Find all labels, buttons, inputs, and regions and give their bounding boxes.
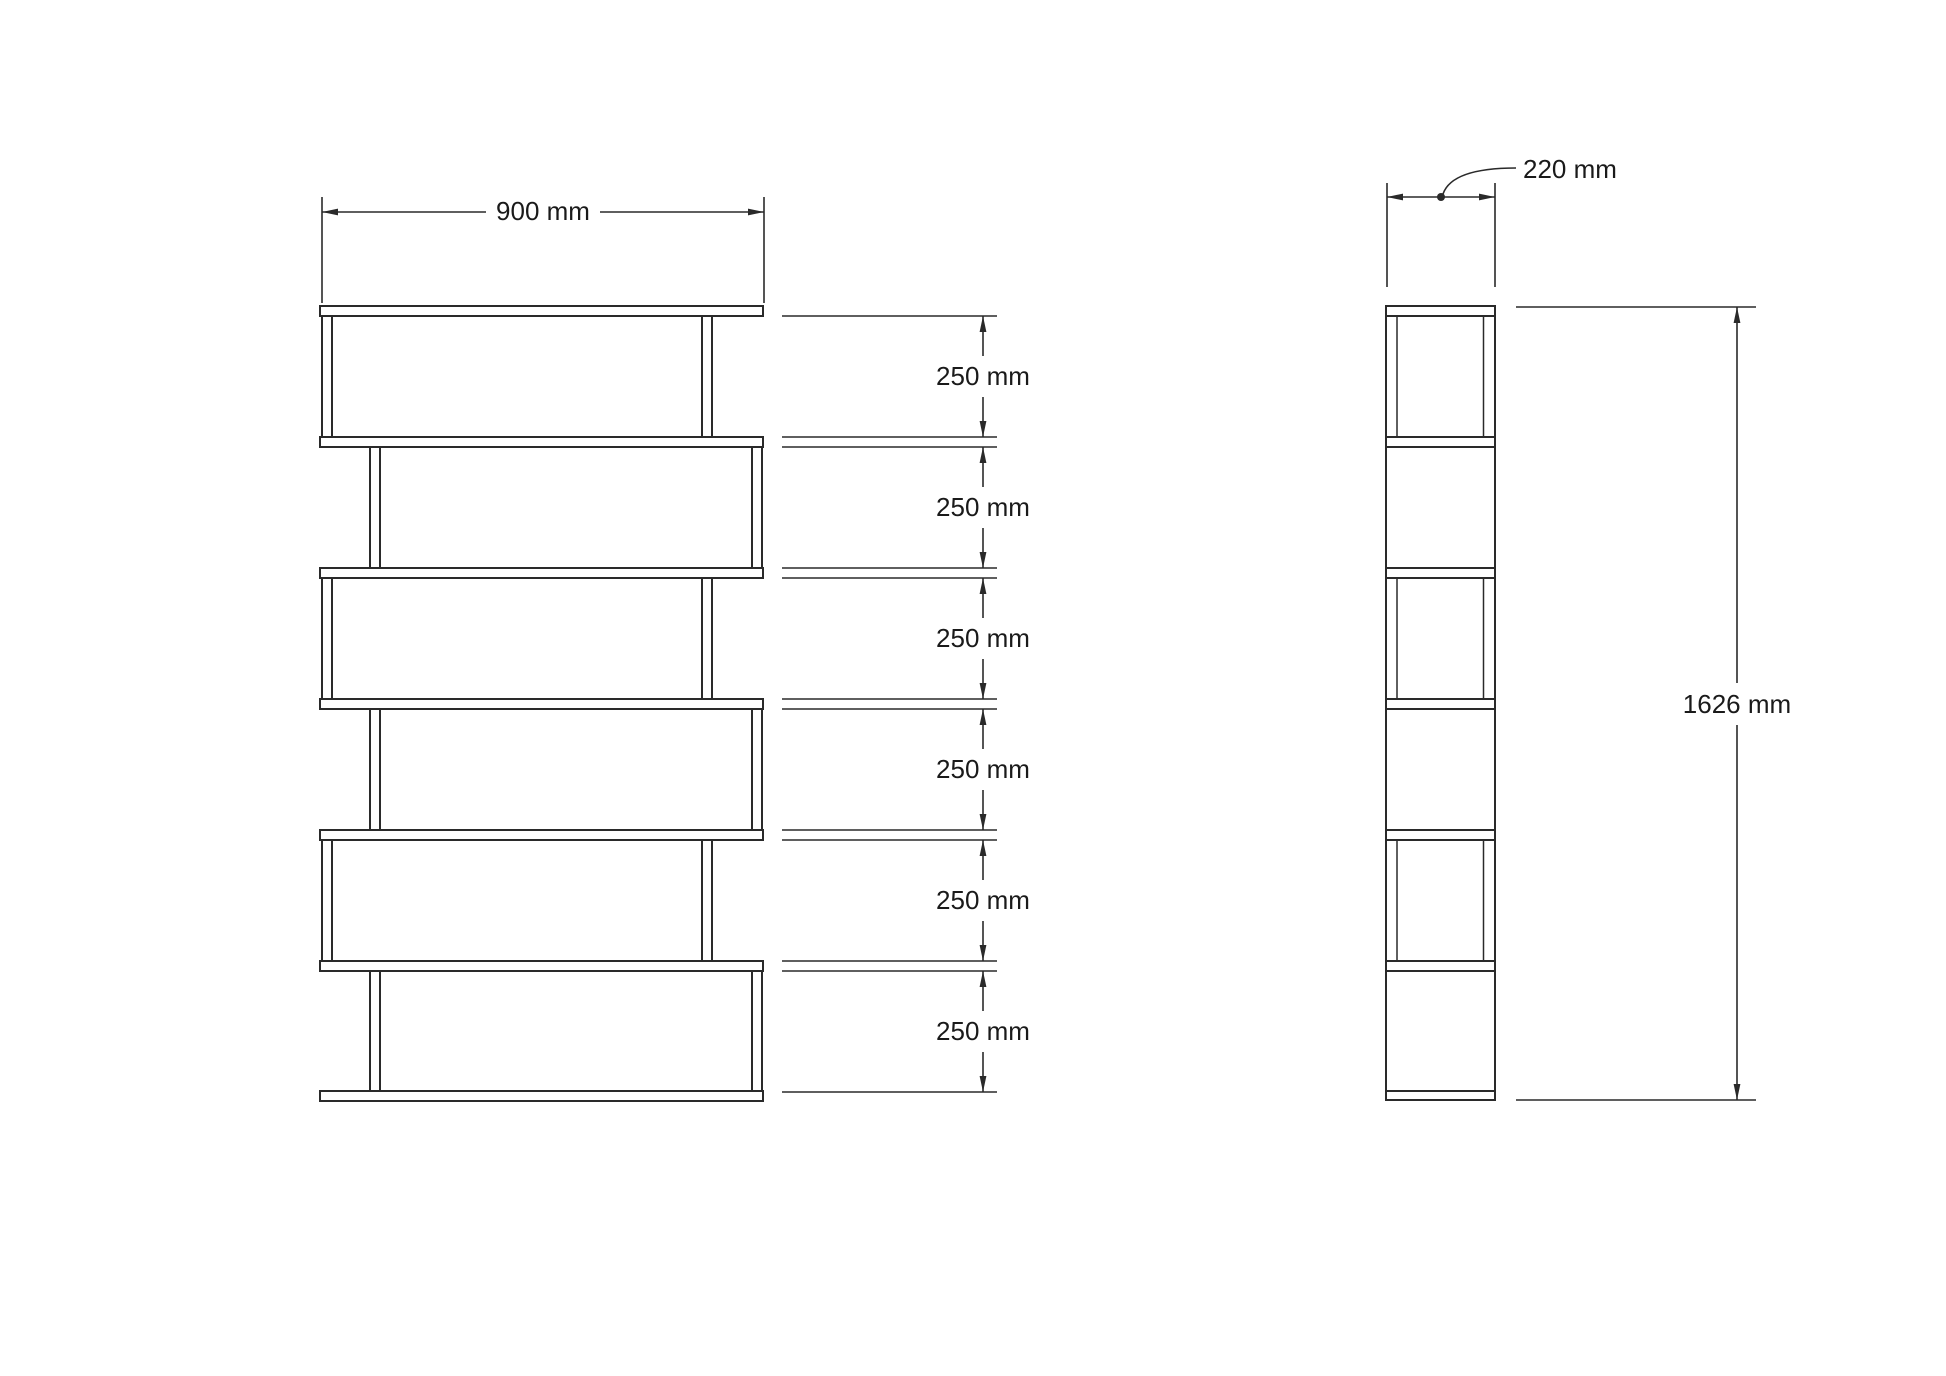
arrowhead-down — [980, 945, 987, 961]
arrowhead-up — [980, 447, 987, 463]
shelf-board — [320, 437, 763, 447]
vertical-panel — [370, 709, 380, 830]
shelf-board — [320, 830, 763, 840]
dimension-label-250mm: 250 mm — [936, 754, 1030, 784]
arrowhead-down — [980, 552, 987, 568]
vertical-panel — [752, 709, 762, 830]
arrowhead-up — [980, 578, 987, 594]
dimension-label-250mm: 250 mm — [936, 1016, 1030, 1046]
dimension-250mm-stack: 250 mm 250 mm 250 mm 250 mm — [782, 316, 1030, 1092]
dimension-250mm-5: 250 mm — [936, 840, 1030, 961]
arrowhead-left — [1387, 194, 1403, 201]
arrowhead-up — [980, 840, 987, 856]
dimension-250mm-2: 250 mm — [936, 447, 1030, 568]
dimension-1626mm: 1626 mm — [1516, 307, 1791, 1100]
shelf-board — [320, 1091, 763, 1101]
arrowhead-left — [322, 209, 338, 216]
dimension-label-250mm: 250 mm — [936, 885, 1030, 915]
arrowhead-down — [980, 1076, 987, 1092]
shelf-board — [320, 568, 763, 578]
dimension-label-250mm: 250 mm — [936, 623, 1030, 653]
leader-dot — [1437, 193, 1445, 201]
dimension-220mm: 220 mm — [1387, 154, 1617, 287]
vertical-panel — [702, 840, 712, 961]
side-outline — [1386, 306, 1495, 1100]
dimension-label-220mm: 220 mm — [1523, 154, 1617, 184]
dimension-250mm-3: 250 mm — [936, 578, 1030, 699]
dimension-label-900mm: 900 mm — [496, 196, 590, 226]
arrowhead-down — [980, 814, 987, 830]
vertical-panel — [752, 447, 762, 568]
shelf-board — [320, 699, 763, 709]
arrowhead-right — [748, 209, 764, 216]
dimension-label-250mm: 250 mm — [936, 492, 1030, 522]
drawing-canvas: 900 mm 250 mm 250 mm — [0, 0, 1946, 1376]
dimension-250mm-6: 250 mm — [936, 971, 1030, 1092]
dimension-250mm-1: 250 mm — [936, 316, 1030, 437]
arrowhead-up — [980, 316, 987, 332]
arrowhead-right — [1479, 194, 1495, 201]
vertical-panel — [370, 971, 380, 1091]
arrowhead-down — [1734, 1084, 1741, 1100]
arrowhead-down — [980, 421, 987, 437]
arrowhead-up — [980, 971, 987, 987]
technical-drawing: 900 mm 250 mm 250 mm — [0, 0, 1946, 1376]
arrowhead-up — [980, 709, 987, 725]
dimension-label-250mm: 250 mm — [936, 361, 1030, 391]
vertical-panel — [702, 578, 712, 699]
dimension-label-1626mm: 1626 mm — [1683, 689, 1791, 719]
vertical-panel — [702, 316, 712, 437]
leader-curve — [1443, 168, 1516, 194]
arrowhead-down — [980, 683, 987, 699]
shelf-board — [320, 961, 763, 971]
vertical-panel — [322, 578, 332, 699]
vertical-panel — [370, 447, 380, 568]
front-view — [320, 306, 763, 1101]
dimension-250mm-4: 250 mm — [936, 709, 1030, 830]
side-view — [1386, 306, 1495, 1100]
vertical-panel — [752, 971, 762, 1091]
vertical-panel — [322, 840, 332, 961]
shelf-board — [320, 306, 763, 316]
dimension-900mm: 900 mm — [322, 196, 764, 303]
arrowhead-up — [1734, 307, 1741, 323]
vertical-panel — [322, 316, 332, 437]
